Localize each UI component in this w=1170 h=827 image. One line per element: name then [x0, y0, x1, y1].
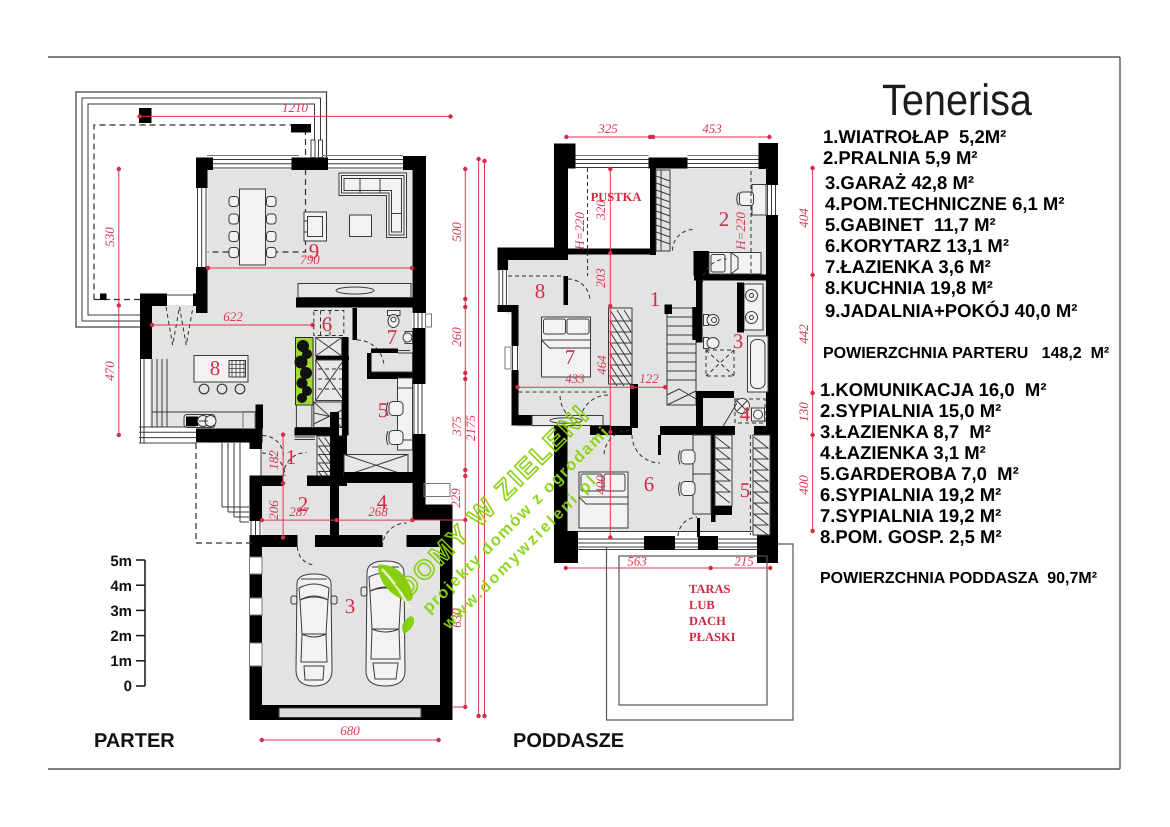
svg-text:POWIERZCHNIA PARTERU 148,2: POWIERZCHNIA PARTERU 148,2 M²	[823, 345, 1109, 362]
svg-text:H=220: H=220	[572, 212, 587, 251]
svg-text:8.KUCHNIA 19,8 M²: 8.KUCHNIA 19,8 M²	[825, 277, 993, 298]
svg-text:680: 680	[340, 723, 360, 738]
svg-text:6: 6	[644, 472, 655, 496]
svg-text:7: 7	[387, 325, 398, 349]
svg-text:7.ŁAZIENKA 3,6 M²: 7.ŁAZIENKA 3,6 M²	[825, 256, 991, 277]
svg-text:122: 122	[639, 371, 659, 386]
svg-text:563: 563	[627, 554, 647, 569]
svg-text:1.KOMUNIKACJA 16,0 M²: 1.KOMUNIKACJA 16,0 M²	[820, 379, 1047, 400]
svg-text:1: 1	[286, 445, 297, 469]
svg-text:5.GABINET 11,7 M²: 5.GABINET 11,7 M²	[825, 214, 996, 235]
svg-text:325: 325	[597, 121, 618, 136]
svg-text:POWIERZCHNIA PODDASZA 90,7M²: POWIERZCHNIA PODDASZA 90,7M²	[820, 570, 1097, 587]
svg-text:453: 453	[702, 121, 722, 136]
svg-text:2: 2	[298, 492, 309, 516]
svg-text:203: 203	[593, 268, 608, 288]
svg-text:182: 182	[266, 450, 281, 470]
svg-text:229: 229	[448, 488, 463, 508]
svg-text:6.SYPIALNIA 19,2 M²: 6.SYPIALNIA 19,2 M²	[820, 484, 1001, 505]
svg-text:8.POM. GOSP. 2,5 M²: 8.POM. GOSP. 2,5 M²	[820, 526, 1002, 547]
svg-text:3: 3	[733, 329, 744, 353]
svg-text:404: 404	[796, 208, 811, 228]
svg-text:2.PRALNIA 5,9 M²: 2.PRALNIA 5,9 M²	[823, 147, 978, 168]
svg-text:6.KORYTARZ 13,1 M²: 6.KORYTARZ 13,1 M²	[825, 235, 1009, 256]
svg-text:PUSTKA: PUSTKA	[591, 190, 642, 204]
svg-text:375: 375	[449, 416, 464, 437]
svg-text:2: 2	[719, 207, 730, 231]
svg-text:PODDASZE: PODDASZE	[513, 730, 624, 752]
svg-text:530: 530	[102, 227, 117, 247]
svg-text:5m: 5m	[110, 553, 132, 570]
svg-text:DACH: DACH	[689, 614, 726, 628]
svg-text:1m: 1m	[110, 653, 132, 670]
svg-text:8: 8	[535, 279, 546, 303]
svg-text:5: 5	[378, 398, 389, 422]
svg-text:3.ŁAZIENKA 8,7 M²: 3.ŁAZIENKA 8,7 M²	[820, 421, 991, 442]
svg-text:3m: 3m	[110, 603, 132, 620]
svg-text:1.WIATROŁAP 5,2M²: 1.WIATROŁAP 5,2M²	[823, 126, 1006, 147]
svg-text:4m: 4m	[110, 578, 132, 595]
svg-text:260: 260	[449, 327, 464, 347]
svg-text:TARAS: TARAS	[689, 582, 730, 596]
svg-text:622: 622	[223, 309, 243, 324]
svg-text:470: 470	[102, 361, 117, 381]
svg-text:9.JADALNIA+POKÓJ 40,0 M²: 9.JADALNIA+POKÓJ 40,0 M²	[825, 300, 1077, 321]
svg-text:130: 130	[796, 402, 811, 422]
svg-text:433: 433	[565, 371, 585, 386]
svg-text:4: 4	[740, 402, 751, 426]
svg-text:PŁASKI: PŁASKI	[689, 630, 736, 644]
svg-text:464: 464	[594, 355, 609, 375]
svg-text:3.GARAŻ 42,8 M²: 3.GARAŻ 42,8 M²	[825, 172, 974, 193]
svg-text:2m: 2m	[110, 628, 132, 645]
svg-text:400: 400	[796, 475, 811, 495]
svg-text:5: 5	[740, 478, 751, 502]
svg-text:4: 4	[377, 490, 388, 514]
svg-text:3: 3	[345, 594, 356, 618]
svg-text:PARTER: PARTER	[94, 730, 175, 752]
svg-text:2.SYPIALNIA 15,0 M²: 2.SYPIALNIA 15,0 M²	[820, 400, 1001, 421]
svg-text:9: 9	[309, 239, 320, 263]
svg-text:7.SYPIALNIA 19,2 M²: 7.SYPIALNIA 19,2 M²	[820, 505, 1001, 526]
svg-text:0: 0	[124, 678, 132, 695]
svg-text:5.GARDEROBA 7,0 M²: 5.GARDEROBA 7,0 M²	[820, 463, 1019, 484]
svg-text:2175: 2175	[463, 415, 478, 442]
svg-text:1: 1	[650, 287, 661, 311]
svg-text:1210: 1210	[282, 100, 309, 115]
svg-text:8: 8	[210, 356, 221, 380]
svg-text:442: 442	[796, 324, 811, 344]
svg-text:7: 7	[565, 345, 576, 369]
svg-text:LUB: LUB	[689, 598, 715, 612]
svg-text:6: 6	[322, 312, 333, 336]
svg-text:4.ŁAZIENKA 3,1 M²: 4.ŁAZIENKA 3,1 M²	[820, 442, 986, 463]
svg-text:215: 215	[734, 554, 754, 569]
svg-text:500: 500	[449, 222, 464, 242]
svg-text:206: 206	[266, 500, 281, 520]
svg-text:4.POM.TECHNICZNE 6,1 M²: 4.POM.TECHNICZNE 6,1 M²	[825, 193, 1065, 214]
svg-text:Tenerisa: Tenerisa	[882, 76, 1032, 125]
svg-text:H=220: H=220	[733, 212, 748, 251]
